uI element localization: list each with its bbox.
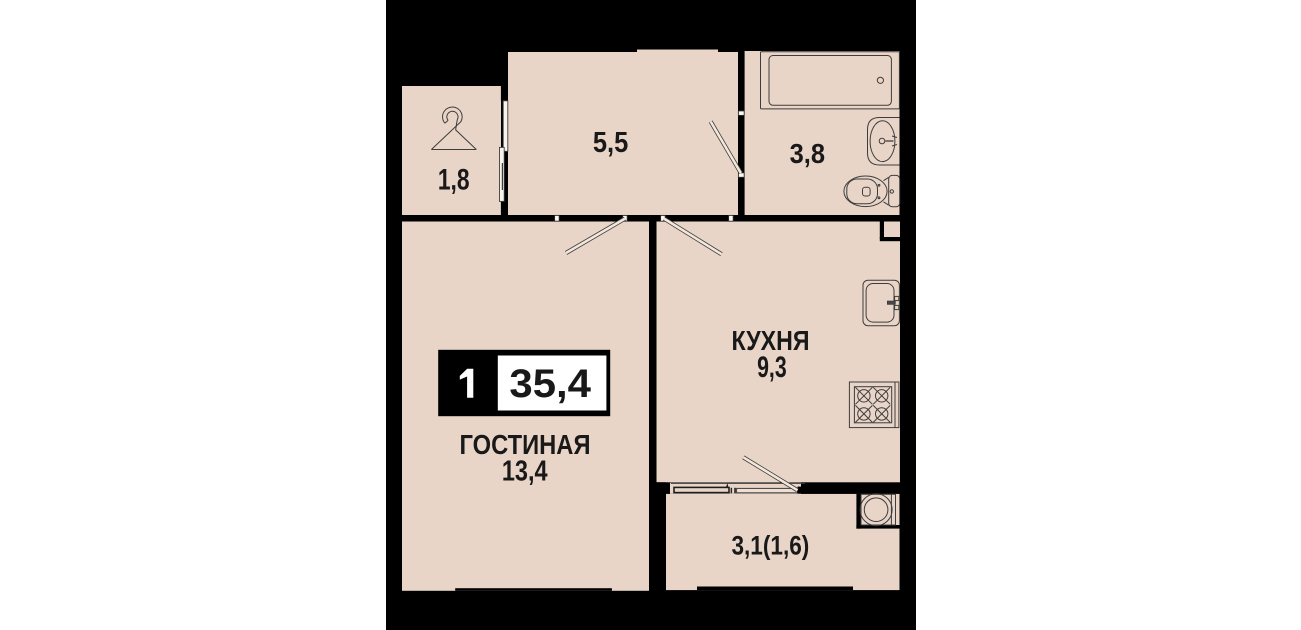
svg-text:9,3: 9,3 [757, 351, 787, 384]
svg-text:5,5: 5,5 [593, 127, 629, 159]
svg-text:3,1(1,6): 3,1(1,6) [731, 530, 809, 560]
svg-text:35,4: 35,4 [509, 362, 591, 406]
svg-text:13,4: 13,4 [502, 456, 548, 488]
svg-text:3,8: 3,8 [790, 138, 825, 169]
svg-text:1,8: 1,8 [438, 164, 470, 197]
